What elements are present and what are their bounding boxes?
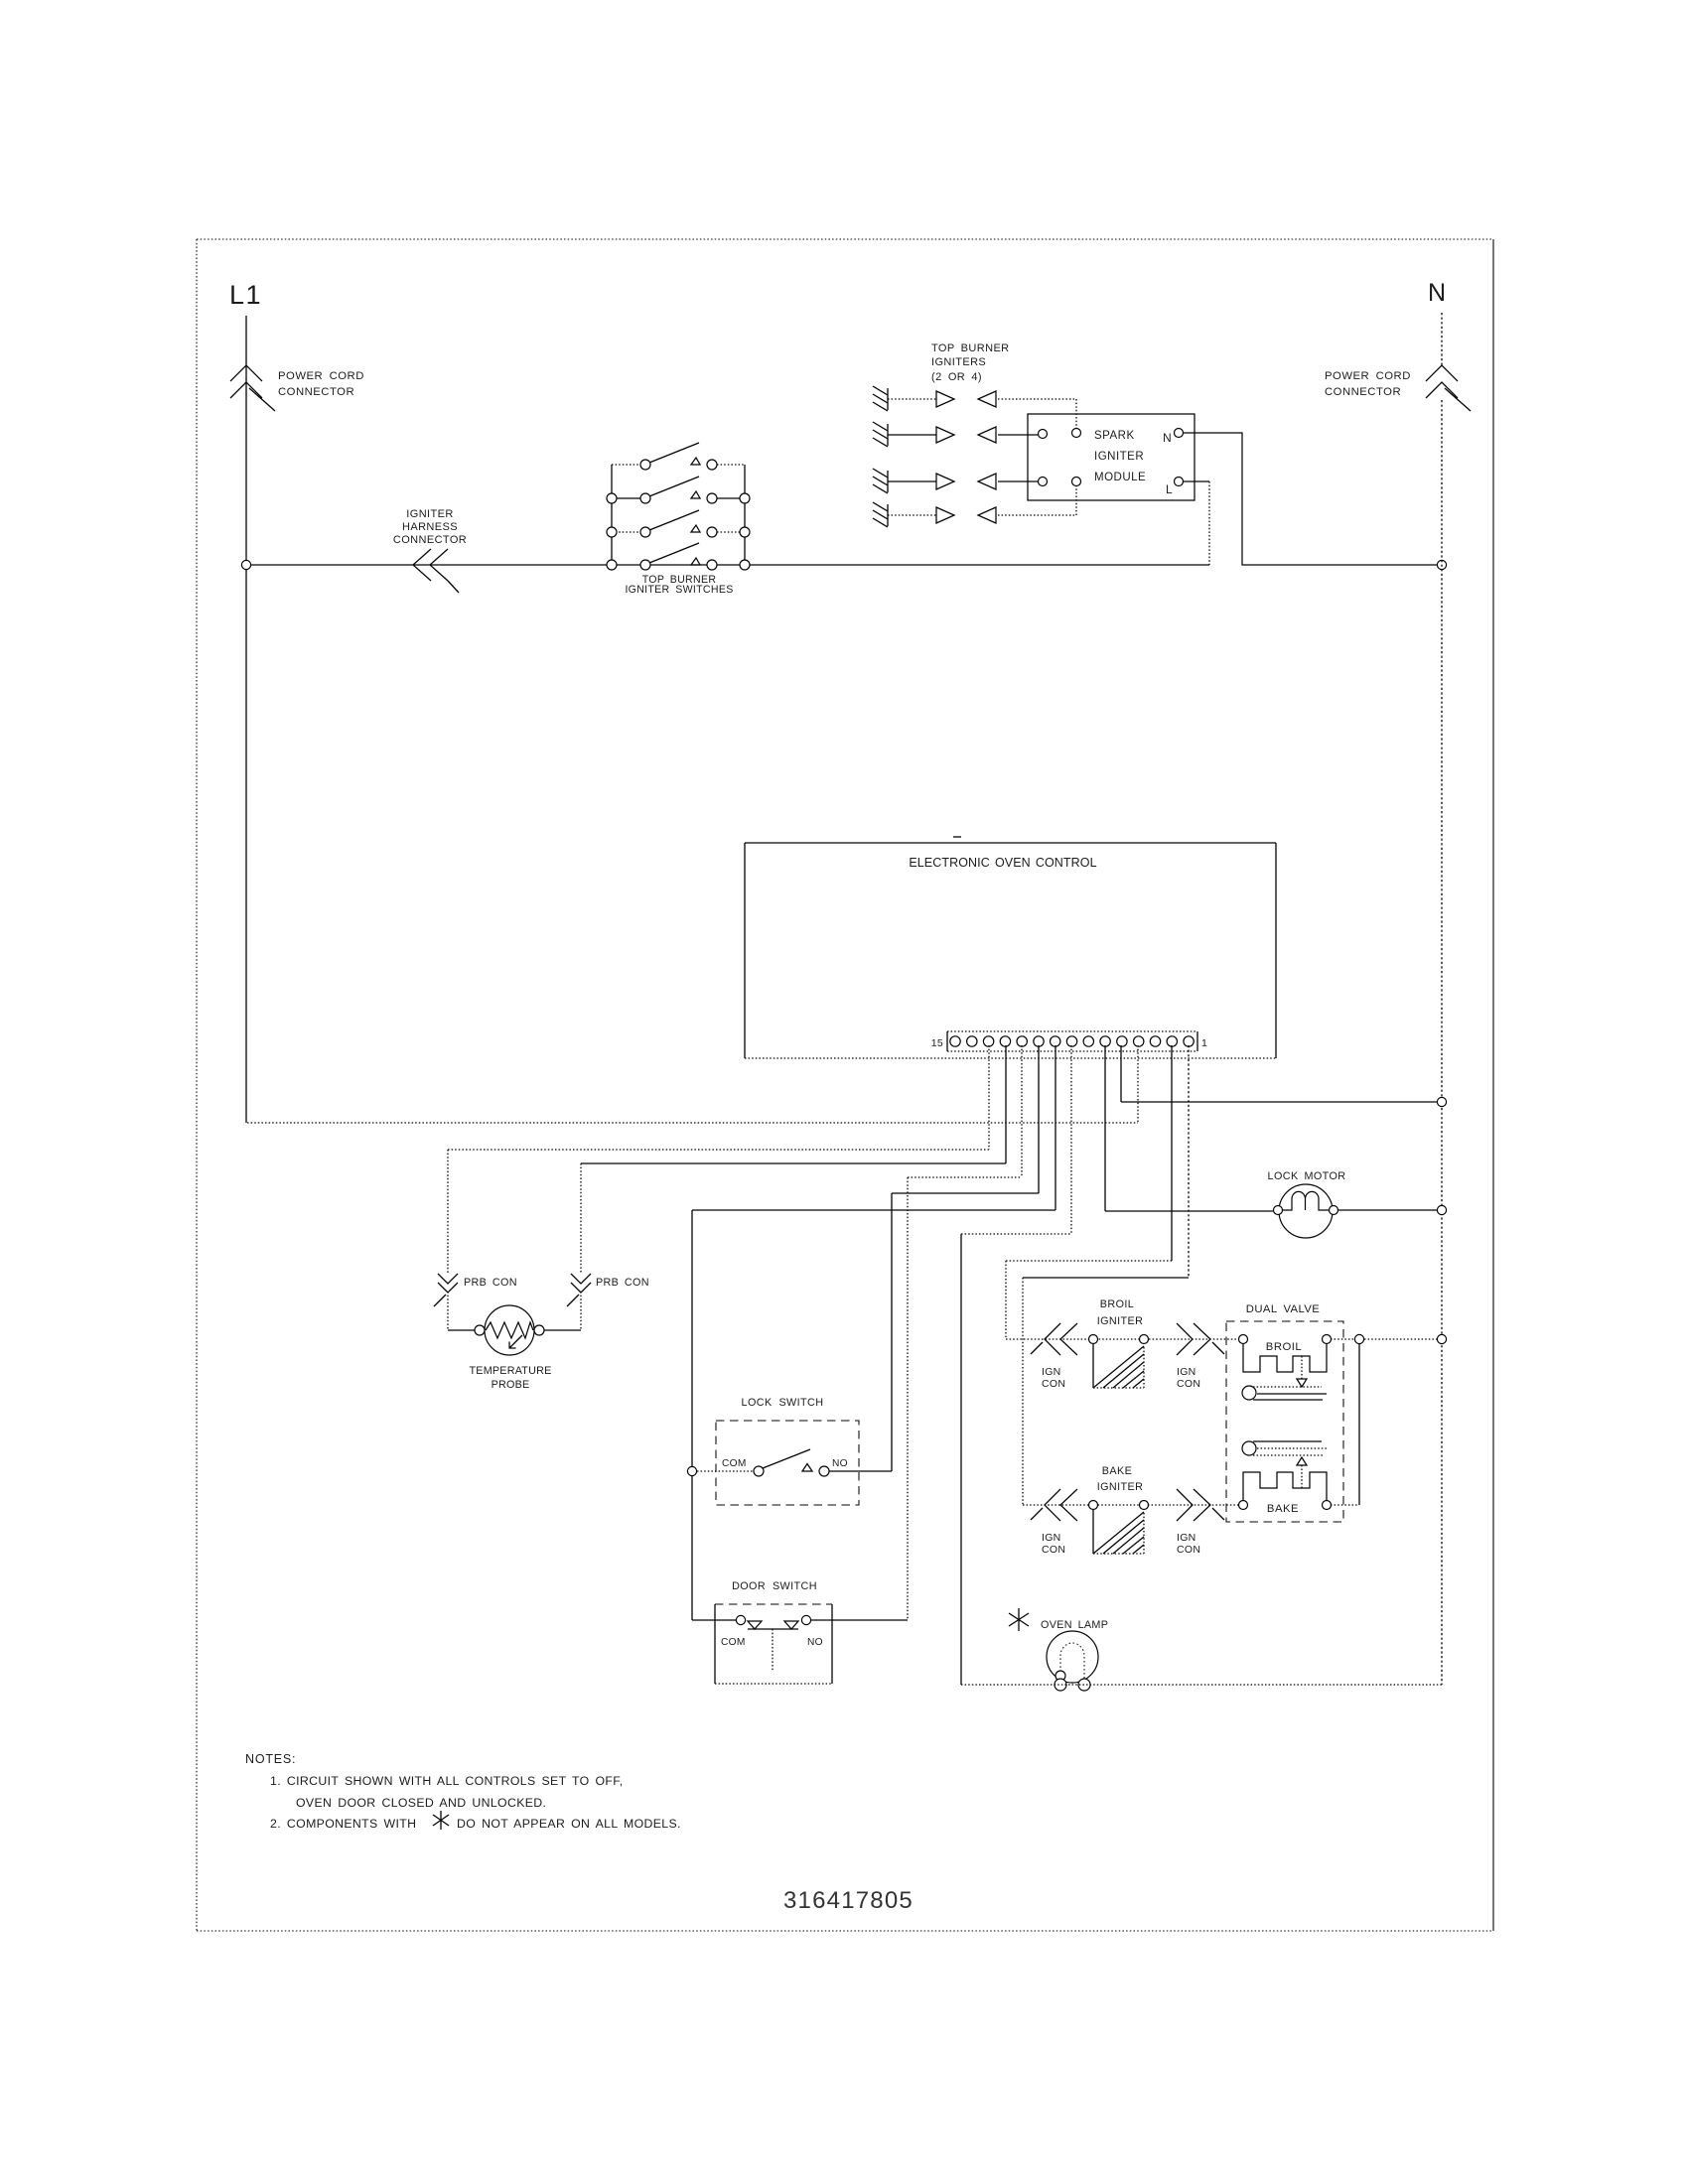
svg-text:316417805: 316417805 (783, 1887, 914, 1914)
svg-text:POWER CORD: POWER CORD (1325, 370, 1411, 382)
svg-text:DO NOT APPEAR ON ALL MODE: DO NOT APPEAR ON ALL MODELS. (457, 1817, 681, 1831)
svg-text:2. COMPONENTS WITH: 2. COMPONENTS WITH (270, 1817, 416, 1831)
svg-text:COM: COM (722, 1458, 747, 1469)
svg-text:IGNITER SWITCHES: IGNITER SWITCHES (625, 584, 733, 596)
svg-text:BROIL: BROIL (1100, 1298, 1134, 1310)
svg-text:DOOR SWITCH: DOOR SWITCH (732, 1580, 817, 1592)
svg-text:OVEN LAMP: OVEN LAMP (1041, 1619, 1108, 1631)
svg-text:BAKE: BAKE (1267, 1503, 1299, 1515)
svg-text:IGNITER: IGNITER (1094, 451, 1144, 463)
svg-text:NOTES:: NOTES: (245, 1752, 296, 1766)
svg-text:TEMPERATURE: TEMPERATURE (470, 1365, 552, 1377)
svg-text:N: N (1428, 279, 1448, 307)
svg-text:L: L (1166, 482, 1173, 496)
svg-text:ELECTRONIC OVEN CONTROL: ELECTRONIC OVEN CONTROL (909, 856, 1096, 870)
svg-text:HARNESS: HARNESS (402, 521, 458, 533)
svg-text:IGNITERS: IGNITERS (931, 356, 986, 368)
svg-text:15: 15 (931, 1037, 943, 1049)
svg-text:NO: NO (807, 1637, 823, 1648)
svg-text:L1: L1 (229, 280, 262, 310)
svg-text:IGN: IGN (1177, 1532, 1196, 1544)
svg-text:PRB CON: PRB CON (464, 1277, 517, 1289)
svg-text:CON: CON (1177, 1378, 1200, 1390)
svg-text:IGNITER: IGNITER (1097, 1315, 1144, 1327)
svg-text:LOCK MOTOR: LOCK MOTOR (1268, 1170, 1346, 1182)
svg-text:COM: COM (721, 1637, 746, 1648)
svg-text:IGNITER: IGNITER (406, 508, 453, 520)
svg-text:CON: CON (1177, 1544, 1200, 1556)
svg-text:CONNECTOR: CONNECTOR (1325, 386, 1401, 398)
svg-text:TOP BURNER: TOP BURNER (931, 342, 1010, 354)
svg-text:BAKE: BAKE (1102, 1465, 1132, 1477)
svg-text:PRB CON: PRB CON (596, 1277, 649, 1289)
svg-text:IGN: IGN (1042, 1532, 1061, 1544)
svg-text:OVEN DOOR CLOSED AND UNLOC: OVEN DOOR CLOSED AND UNLOCKED. (296, 1796, 546, 1810)
svg-text:IGNITER: IGNITER (1097, 1481, 1144, 1493)
svg-text:CON: CON (1042, 1378, 1065, 1390)
svg-text:NO: NO (832, 1458, 848, 1469)
svg-text:IGN: IGN (1177, 1366, 1196, 1378)
svg-text:CON: CON (1042, 1544, 1065, 1556)
svg-text:N: N (1163, 431, 1172, 445)
svg-text:IGN: IGN (1042, 1366, 1061, 1378)
svg-text:(2 OR 4): (2 OR 4) (931, 371, 982, 383)
svg-text:LOCK SWITCH: LOCK SWITCH (742, 1397, 824, 1409)
svg-text:MODULE: MODULE (1094, 472, 1146, 483)
svg-text:POWER CORD: POWER CORD (278, 370, 364, 382)
svg-text:CONNECTOR: CONNECTOR (278, 386, 354, 398)
svg-text:CONNECTOR: CONNECTOR (393, 534, 467, 546)
svg-text:DUAL VALVE: DUAL VALVE (1246, 1303, 1320, 1315)
svg-text:PROBE: PROBE (492, 1379, 530, 1391)
svg-text:SPARK: SPARK (1094, 430, 1135, 442)
svg-text:1: 1 (1201, 1037, 1207, 1049)
svg-text:BROIL: BROIL (1266, 1341, 1302, 1353)
svg-text:1. CIRCUIT SHOWN WITH ALL: 1. CIRCUIT SHOWN WITH ALL CONTROLS SET T… (270, 1774, 624, 1788)
